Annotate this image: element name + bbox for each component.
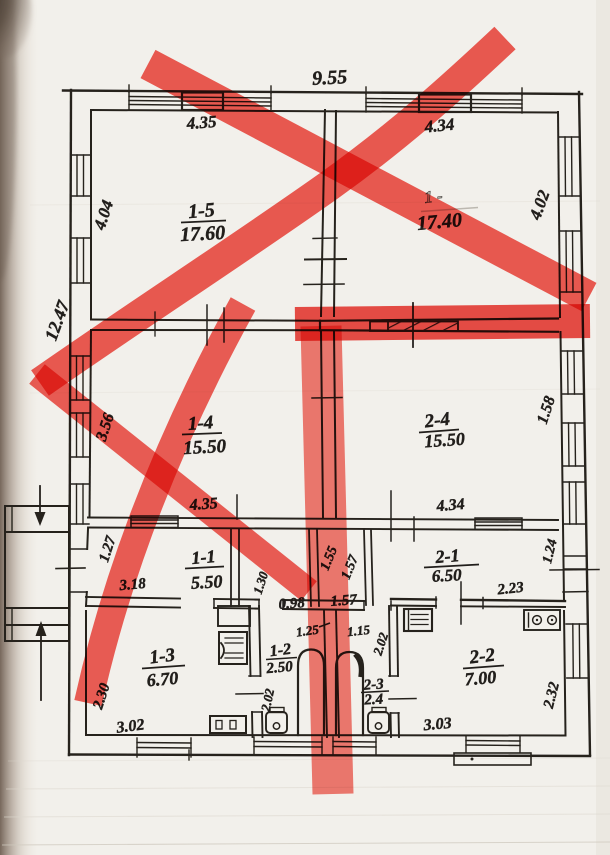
svg-text:17.60: 17.60 [180, 222, 226, 246]
svg-text:6.50: 6.50 [431, 565, 462, 586]
svg-text:2.4: 2.4 [363, 691, 384, 708]
svg-text:5.50: 5.50 [190, 571, 223, 593]
svg-text:15.50: 15.50 [424, 429, 466, 452]
svg-text:1-1: 1-1 [191, 546, 217, 568]
svg-text:4.34: 4.34 [435, 496, 465, 515]
svg-text:2.50: 2.50 [265, 659, 294, 677]
svg-text:3.02: 3.02 [115, 716, 146, 736]
svg-text:2.23: 2.23 [496, 580, 525, 599]
svg-text:1.15: 1.15 [346, 622, 371, 639]
svg-text:7.00: 7.00 [464, 667, 497, 690]
svg-text:1-3: 1-3 [148, 645, 176, 669]
svg-text:2-1: 2-1 [434, 545, 461, 567]
svg-text:6.70: 6.70 [146, 668, 179, 691]
svg-text:3.03: 3.03 [422, 715, 452, 734]
svg-text:2-2: 2-2 [467, 645, 496, 669]
svg-text:9.55: 9.55 [312, 66, 348, 90]
svg-text:1-5: 1-5 [187, 199, 215, 223]
